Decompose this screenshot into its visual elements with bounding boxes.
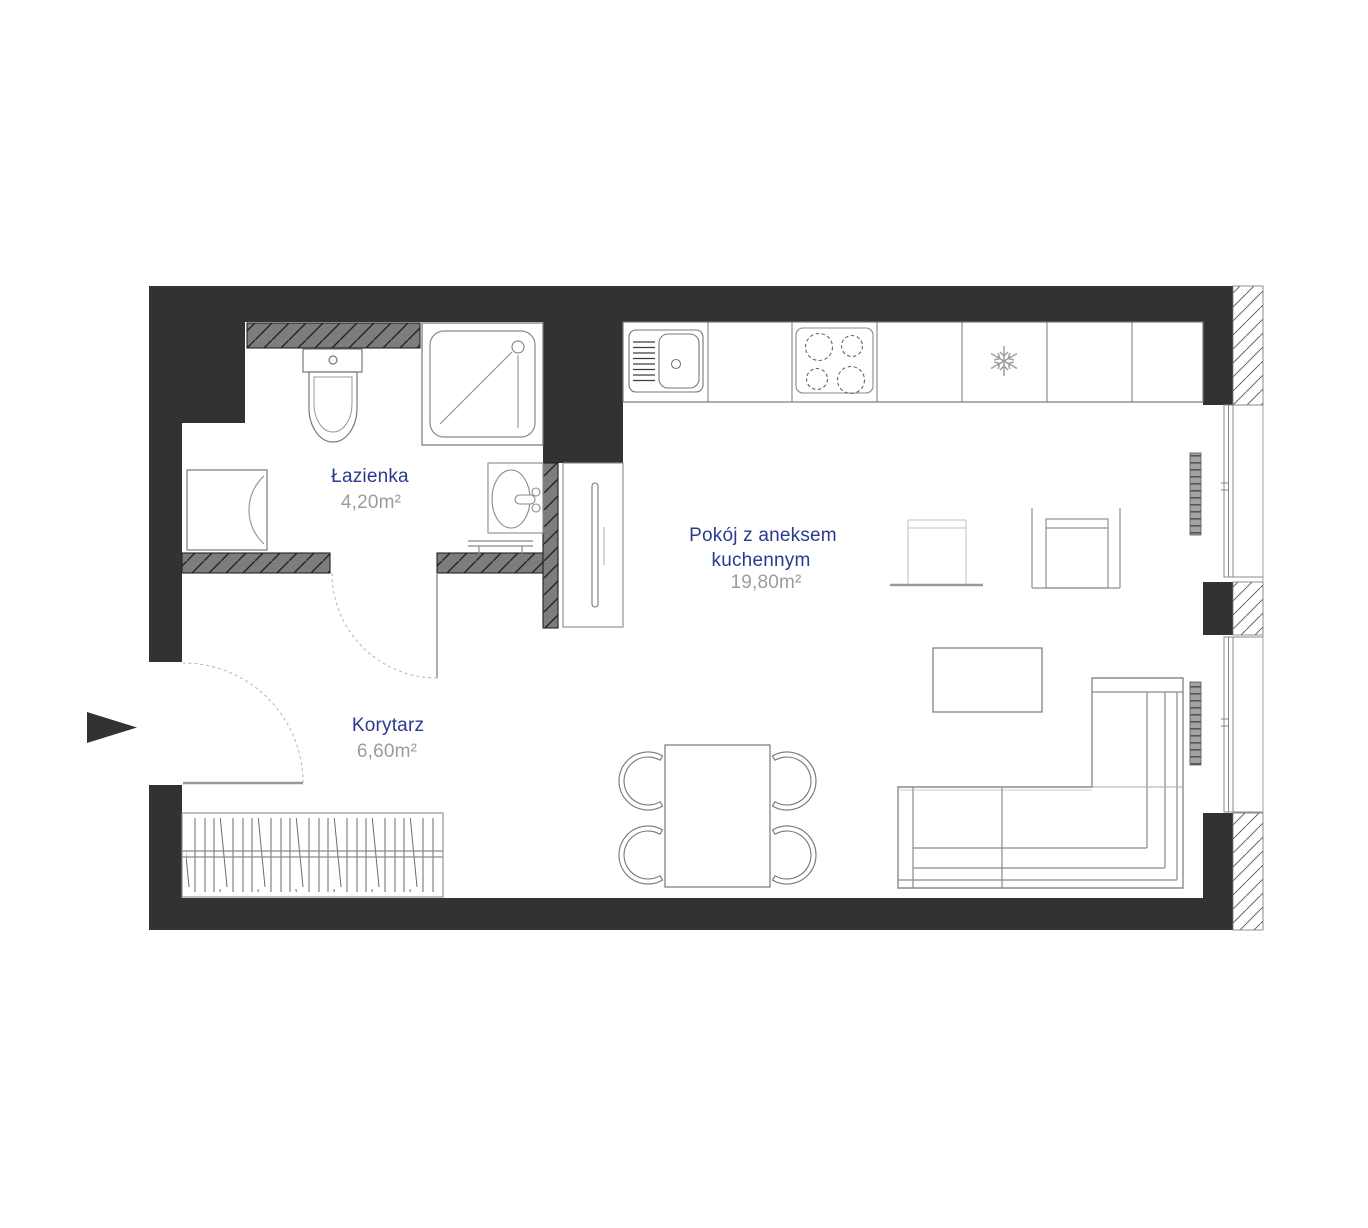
- coffee-table: [933, 648, 1042, 712]
- exterior-wall-hatch: [1233, 286, 1263, 930]
- room-label-corridor: Korytarz: [352, 716, 424, 735]
- washing-machine: [187, 470, 267, 550]
- dining-chair: [773, 826, 817, 884]
- entry-arrow-icon: [87, 712, 137, 743]
- dining-chair: [773, 752, 817, 810]
- room-label-living-line1: Pokój z aneksem: [689, 526, 837, 545]
- radiator-top: [1190, 453, 1201, 535]
- window-top: [1221, 405, 1263, 577]
- chair: [890, 520, 983, 585]
- radiator-bottom: [1190, 682, 1201, 765]
- toilet: [303, 349, 362, 442]
- room-label-living-line2: kuchennym: [712, 551, 811, 570]
- bathroom-sink: [488, 463, 543, 533]
- kitchen-counter: [623, 322, 1203, 402]
- wardrobe: [182, 813, 443, 897]
- armchair: [1032, 508, 1120, 588]
- window-bottom: [1221, 637, 1263, 812]
- tv-cabinet: [563, 463, 623, 627]
- room-area-bathroom: 4,20m²: [341, 493, 401, 512]
- dining-chair: [619, 826, 663, 884]
- floor-plan-drawing: [0, 0, 1368, 1228]
- room-area-living: 19,80m²: [730, 573, 801, 592]
- dining-table: [665, 745, 770, 887]
- entry-door: [183, 663, 303, 783]
- towel-rail: [468, 541, 533, 554]
- dining-chair: [619, 752, 663, 810]
- room-label-bathroom: Łazienka: [331, 467, 409, 486]
- floor-plan: Łazienka 4,20m² Pokój z aneksem kuchenny…: [0, 0, 1368, 1228]
- bathroom-door: [332, 573, 437, 678]
- shower: [422, 323, 543, 445]
- room-area-corridor: 6,60m²: [357, 742, 417, 761]
